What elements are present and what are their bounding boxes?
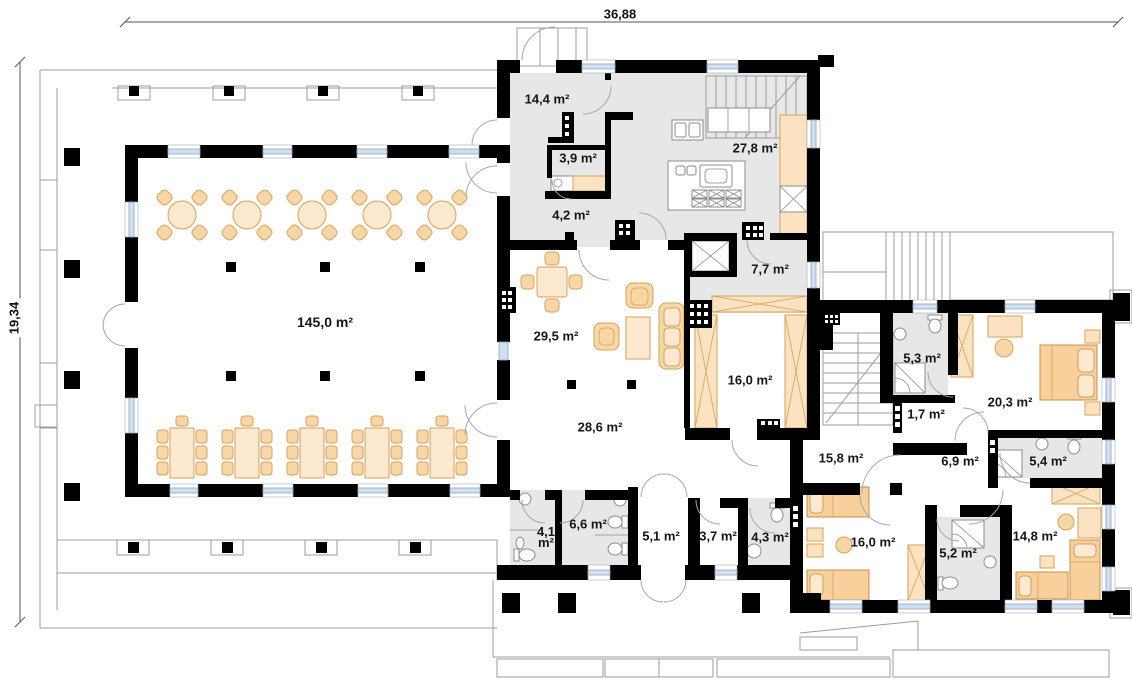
room-area-label-corridor-bedrooms: 6,9 m² [941, 454, 979, 469]
room-area-label-corridor-entry: 4,2 m² [552, 208, 590, 223]
room-area-label-wc-small: 4,1 m² [532, 526, 560, 548]
room-area-label-corridor-stairs: 15,8 m² [819, 451, 864, 466]
room-area-label-bathroom-south: 5,2 m² [939, 546, 977, 561]
room-area-label-lift-lobby: 7,7 m² [751, 262, 789, 277]
hall-round-tables [155, 188, 468, 241]
room-area-label-bedroom-east: 20,3 m² [988, 395, 1033, 410]
room-area-label-bathroom-east: 5,4 m² [1029, 454, 1067, 469]
room-area-label-storage-room: 16,0 m² [728, 373, 773, 388]
dimension-height-label: 19,34 [7, 299, 22, 338]
room-area-label-corridor-main: 28,6 m² [578, 420, 623, 435]
room-area-label-closet: 1,7 m² [907, 407, 945, 422]
dimension-width-label: 36,88 [601, 7, 640, 22]
room-area-label-bathroom-staff: 4,3 m² [751, 530, 789, 545]
room-area-label-vestibule: 5,1 m² [642, 529, 680, 544]
room-area-label-entry-hall: 14,4 m² [525, 92, 570, 107]
room-area-label-kitchen: 27,8 m² [733, 141, 778, 156]
lounge-furniture [521, 252, 684, 369]
room-area-label-bathroom-north: 5,3 m² [903, 351, 941, 366]
room-area-label-hall: 145,0 m² [297, 314, 353, 330]
room-area-label-toilet-entry: 3,9 m² [559, 151, 597, 166]
room-area-label-bedroom-southwest: 16,0 m² [851, 535, 896, 550]
room-area-label-bedroom-southeast: 14,8 m² [1013, 529, 1058, 544]
hall-long-tables [157, 416, 467, 478]
floor-plan-canvas: 36,88 19,34 145,0 m² 14,4 m² 3,9 m² 4,2 … [0, 0, 1132, 687]
elevator [692, 241, 729, 271]
room-area-label-lounge: 29,5 m² [534, 329, 579, 344]
room-area-label-storage-small: 3,7 m² [699, 529, 737, 544]
room-area-label-wc-large: 6,6 m² [569, 517, 607, 532]
